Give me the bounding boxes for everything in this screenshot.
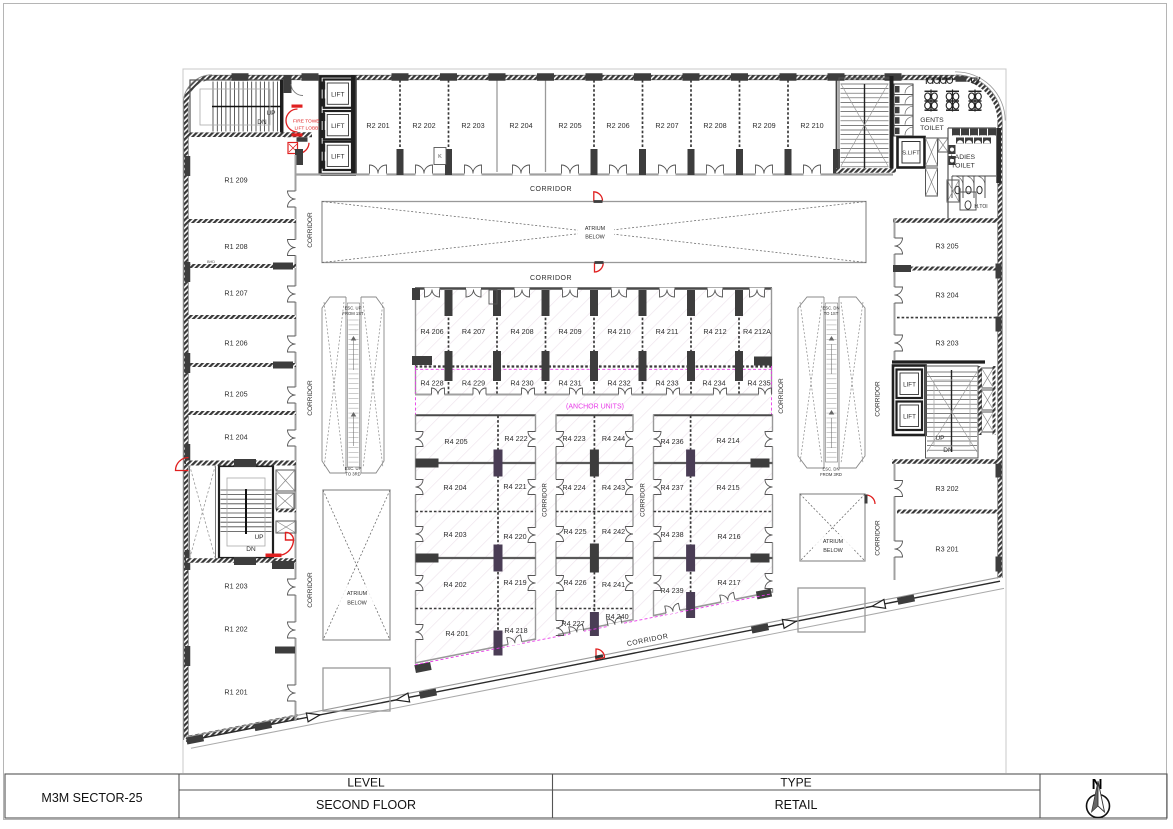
svg-text:TO 3RD: TO 3RD (345, 472, 360, 477)
svg-text:R4 237: R4 237 (660, 483, 683, 492)
svg-text:SECOND FLOOR: SECOND FLOOR (316, 798, 416, 812)
svg-text:ESC. DN: ESC. DN (823, 306, 840, 311)
svg-text:(ANCHOR UNITS): (ANCHOR UNITS) (566, 404, 624, 411)
svg-text:R4 214: R4 214 (716, 436, 739, 445)
svg-text:TOILET: TOILET (920, 125, 944, 132)
svg-text:TOILET: TOILET (951, 163, 975, 170)
svg-text:FROM 3RD: FROM 3RD (820, 472, 842, 477)
svg-text:R1 207: R1 207 (224, 289, 247, 298)
svg-text:R4 202: R4 202 (443, 580, 466, 589)
svg-text:M3M SECTOR-25: M3M SECTOR-25 (41, 791, 142, 805)
svg-text:R1 205: R1 205 (224, 390, 247, 399)
svg-text:ATRIUM: ATRIUM (347, 591, 368, 597)
svg-text:R4 223: R4 223 (562, 434, 585, 443)
svg-text:R4 201: R4 201 (445, 629, 468, 638)
svg-text:R4 236: R4 236 (660, 437, 683, 446)
svg-text:R4 212A: R4 212A (743, 327, 771, 336)
svg-text:R4 220: R4 220 (503, 532, 526, 541)
svg-text:R2 207: R2 207 (655, 121, 678, 130)
svg-text:R4 241: R4 241 (602, 580, 625, 589)
svg-text:R2 206: R2 206 (606, 121, 629, 130)
svg-text:BELOW: BELOW (347, 601, 367, 607)
svg-text:S.LIFT: S.LIFT (902, 151, 920, 157)
svg-text:CORRIDOR: CORRIDOR (307, 380, 314, 416)
svg-text:R3 204: R3 204 (935, 291, 958, 300)
svg-text:GENTS: GENTS (920, 117, 944, 124)
svg-text:R4 219: R4 219 (503, 578, 526, 587)
svg-text:R2 209: R2 209 (752, 121, 775, 130)
svg-text:R4 242: R4 242 (602, 527, 625, 536)
svg-text:TO 1ST: TO 1ST (824, 311, 839, 316)
svg-text:R4 208: R4 208 (510, 327, 533, 336)
svg-text:FROM 1ST: FROM 1ST (342, 311, 364, 316)
svg-text:BELOW: BELOW (585, 235, 605, 241)
svg-text:UP: UP (935, 435, 944, 442)
svg-text:R3 201: R3 201 (935, 545, 958, 554)
svg-text:R4 235: R4 235 (747, 379, 770, 388)
svg-text:R2 205: R2 205 (558, 121, 581, 130)
svg-text:R4 211: R4 211 (656, 327, 679, 336)
svg-text:R4 244: R4 244 (602, 434, 625, 443)
svg-text:R4 204: R4 204 (443, 483, 466, 492)
svg-text:R2 204: R2 204 (509, 121, 532, 130)
svg-text:R4 203: R4 203 (443, 530, 466, 539)
svg-text:R4 243: R4 243 (602, 483, 625, 492)
svg-text:UP: UP (266, 110, 275, 117)
svg-text:LIFT: LIFT (903, 414, 916, 421)
svg-text:CORRIDOR: CORRIDOR (542, 483, 549, 517)
svg-text:K: K (438, 154, 442, 160)
svg-text:CORRIDOR: CORRIDOR (640, 483, 647, 517)
svg-text:R4 207: R4 207 (462, 327, 485, 336)
svg-text:R2 210: R2 210 (800, 121, 823, 130)
svg-text:R4 206: R4 206 (420, 327, 443, 336)
svg-text:LEVEL: LEVEL (347, 776, 385, 790)
svg-text:R1 201: R1 201 (224, 688, 247, 697)
svg-text:RETAIL: RETAIL (775, 798, 818, 812)
svg-text:LIFT: LIFT (331, 92, 344, 99)
svg-text:R3 205: R3 205 (935, 242, 958, 251)
svg-text:BELOW: BELOW (823, 548, 843, 554)
svg-text:R4 217: R4 217 (717, 578, 740, 587)
svg-text:CORRIDOR: CORRIDOR (530, 186, 572, 193)
svg-text:R2 202: R2 202 (412, 121, 435, 130)
svg-text:DN: DN (246, 546, 256, 553)
svg-text:R4 229: R4 229 (462, 379, 485, 388)
svg-text:R4 210: R4 210 (607, 327, 630, 336)
svg-text:R4 218: R4 218 (504, 626, 527, 635)
svg-text:ESC. DN: ESC. DN (823, 467, 840, 472)
svg-text:R4 228: R4 228 (420, 379, 443, 388)
svg-text:CORRIDOR: CORRIDOR (530, 275, 572, 282)
svg-text:TYPE: TYPE (780, 776, 811, 790)
svg-text:CORRIDOR: CORRIDOR (307, 212, 314, 248)
svg-text:ESC. UP: ESC. UP (345, 466, 362, 471)
svg-text:R3 203: R3 203 (935, 339, 958, 348)
svg-text:R4 224: R4 224 (562, 483, 585, 492)
svg-text:FIRE TOWER: FIRE TOWER (293, 119, 323, 125)
svg-text:R2 208: R2 208 (703, 121, 726, 130)
svg-text:R1 208: R1 208 (224, 242, 247, 251)
svg-text:R2 201: R2 201 (366, 121, 389, 130)
svg-text:ATRIUM: ATRIUM (585, 226, 606, 232)
svg-text:R1 203: R1 203 (224, 582, 247, 591)
svg-text:R4 233: R4 233 (655, 379, 678, 388)
svg-text:R1 202: R1 202 (224, 625, 247, 634)
svg-text:LIFT: LIFT (903, 382, 916, 389)
svg-text:CORRIDOR: CORRIDOR (875, 520, 882, 556)
svg-text:R4 231: R4 231 (558, 379, 581, 388)
svg-text:DN: DN (257, 119, 267, 126)
svg-text:CORRIDOR: CORRIDOR (875, 381, 882, 417)
svg-text:DN: DN (943, 447, 953, 454)
svg-text:R4 234: R4 234 (702, 379, 725, 388)
svg-text:R4 205: R4 205 (444, 437, 467, 446)
svg-text:BHD: BHD (207, 260, 215, 264)
svg-text:LIFT LOBBY: LIFT LOBBY (294, 126, 322, 132)
svg-text:LADIES: LADIES (951, 154, 976, 161)
svg-text:CORRIDOR: CORRIDOR (307, 572, 314, 608)
svg-text:R4 240: R4 240 (605, 612, 628, 621)
svg-text:R4 230: R4 230 (510, 379, 533, 388)
svg-text:H.TOI: H.TOI (974, 204, 987, 210)
svg-text:ATRIUM: ATRIUM (823, 539, 844, 545)
svg-text:R3 202: R3 202 (935, 484, 958, 493)
svg-text:R2 203: R2 203 (461, 121, 484, 130)
svg-text:R1 206: R1 206 (224, 339, 247, 348)
svg-text:R4 225: R4 225 (563, 527, 586, 536)
svg-text:UP: UP (254, 534, 263, 541)
svg-text:R1 204: R1 204 (224, 433, 247, 442)
svg-text:LIFT: LIFT (331, 154, 344, 161)
svg-text:R4 222: R4 222 (504, 434, 527, 443)
svg-text:R4 226: R4 226 (563, 578, 586, 587)
svg-text:R4 239: R4 239 (660, 586, 683, 595)
svg-text:R4 216: R4 216 (717, 532, 740, 541)
svg-text:ESC. UP: ESC. UP (345, 306, 362, 311)
svg-text:R4 209: R4 209 (558, 327, 581, 336)
svg-text:R1 209: R1 209 (224, 176, 247, 185)
svg-text:R4 232: R4 232 (607, 379, 630, 388)
svg-text:CORRIDOR: CORRIDOR (778, 378, 785, 414)
svg-text:LIFT: LIFT (331, 123, 344, 130)
svg-text:R4 221: R4 221 (503, 482, 526, 491)
svg-text:R4 212: R4 212 (703, 327, 726, 336)
svg-text:R4 227: R4 227 (561, 619, 584, 628)
svg-text:R4 215: R4 215 (716, 483, 739, 492)
svg-text:R4 238: R4 238 (660, 530, 683, 539)
